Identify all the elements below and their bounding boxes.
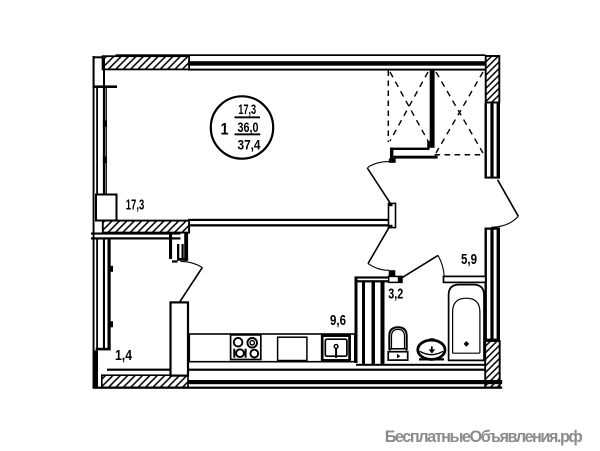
svg-text:1,4: 1,4 <box>115 348 132 364</box>
svg-text:1: 1 <box>221 121 229 139</box>
svg-text:37,4: 37,4 <box>238 138 261 153</box>
svg-text:9,6: 9,6 <box>330 313 346 329</box>
svg-text:36,0: 36,0 <box>238 120 259 135</box>
svg-text:3,2: 3,2 <box>388 287 403 303</box>
svg-text:5,9: 5,9 <box>461 252 477 268</box>
svg-text:17,3: 17,3 <box>238 102 256 117</box>
svg-text:17,3: 17,3 <box>126 198 145 214</box>
svg-text:БесплатныеОбъявления.рф: БесплатныеОбъявления.рф <box>385 428 583 446</box>
